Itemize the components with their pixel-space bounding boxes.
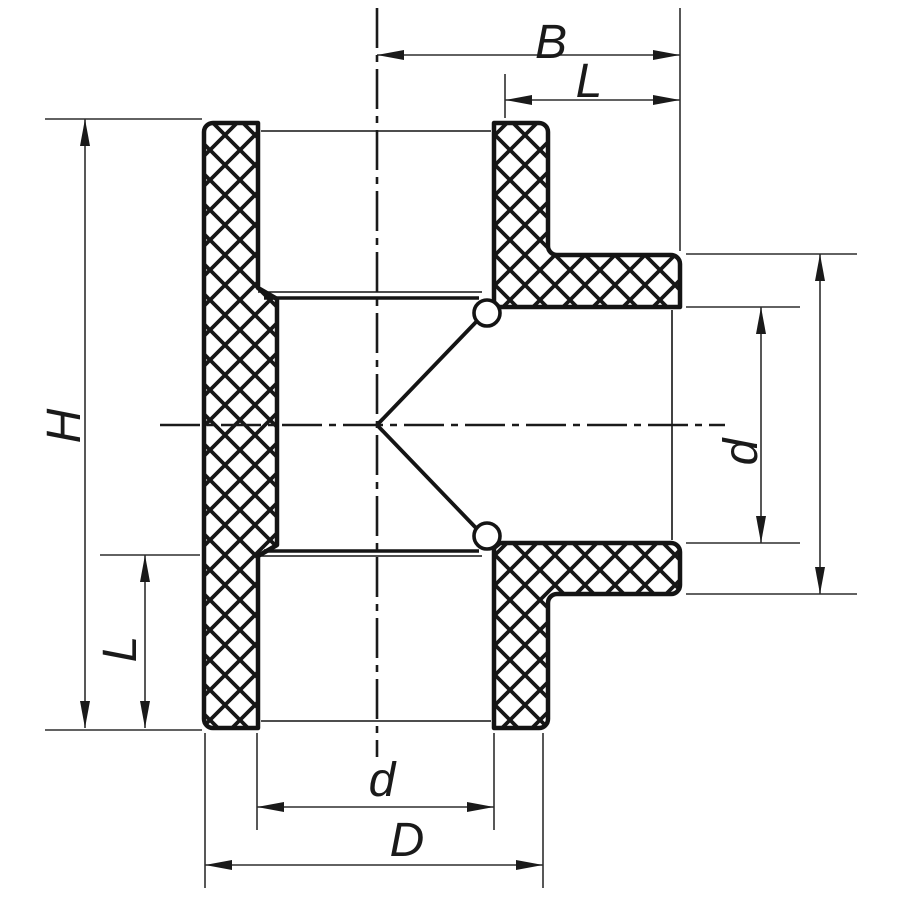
dim-label-L-top: L xyxy=(576,55,603,108)
dim-label-H: H xyxy=(38,408,91,443)
arrow-L-top-right xyxy=(653,95,680,105)
arrow-B-right xyxy=(653,50,680,60)
tee-fitting-technical-drawing: B L H L d d D xyxy=(0,0,900,900)
branch-upper-wall-section xyxy=(494,123,680,307)
dim-label-D: D xyxy=(390,814,425,867)
dimension-lines xyxy=(85,55,820,865)
arrow-d-socket-right xyxy=(467,802,494,812)
arrow-H-bottom xyxy=(80,701,90,728)
dim-label-L-left: L xyxy=(94,636,147,663)
arrow-d-socket-left xyxy=(257,802,284,812)
arrow-L-left-bottom xyxy=(140,701,150,728)
cone-transition-lower xyxy=(377,425,477,529)
dimension-arrows xyxy=(80,50,825,870)
arrow-L-left-top xyxy=(140,555,150,582)
arrow-d-branch-top xyxy=(756,307,766,334)
dim-label-d-branch: d xyxy=(715,437,768,465)
arrow-L-top-left xyxy=(505,95,532,105)
arrow-B-left xyxy=(377,50,404,60)
dim-label-d-socket: d xyxy=(369,754,397,807)
drawing-svg: B L H L d d D xyxy=(0,0,900,900)
arrow-D-left xyxy=(205,860,232,870)
arrow-d-branch-bottom xyxy=(756,516,766,543)
arrow-branch-outer-bottom xyxy=(815,567,825,594)
arrow-D-right xyxy=(516,860,543,870)
cone-transition-upper xyxy=(377,321,477,425)
dim-label-B: B xyxy=(535,16,567,69)
groove-bottom xyxy=(474,523,500,549)
arrow-H-top xyxy=(80,119,90,146)
arrow-branch-outer-top xyxy=(815,254,825,281)
branch-lower-wall-section xyxy=(494,543,680,728)
